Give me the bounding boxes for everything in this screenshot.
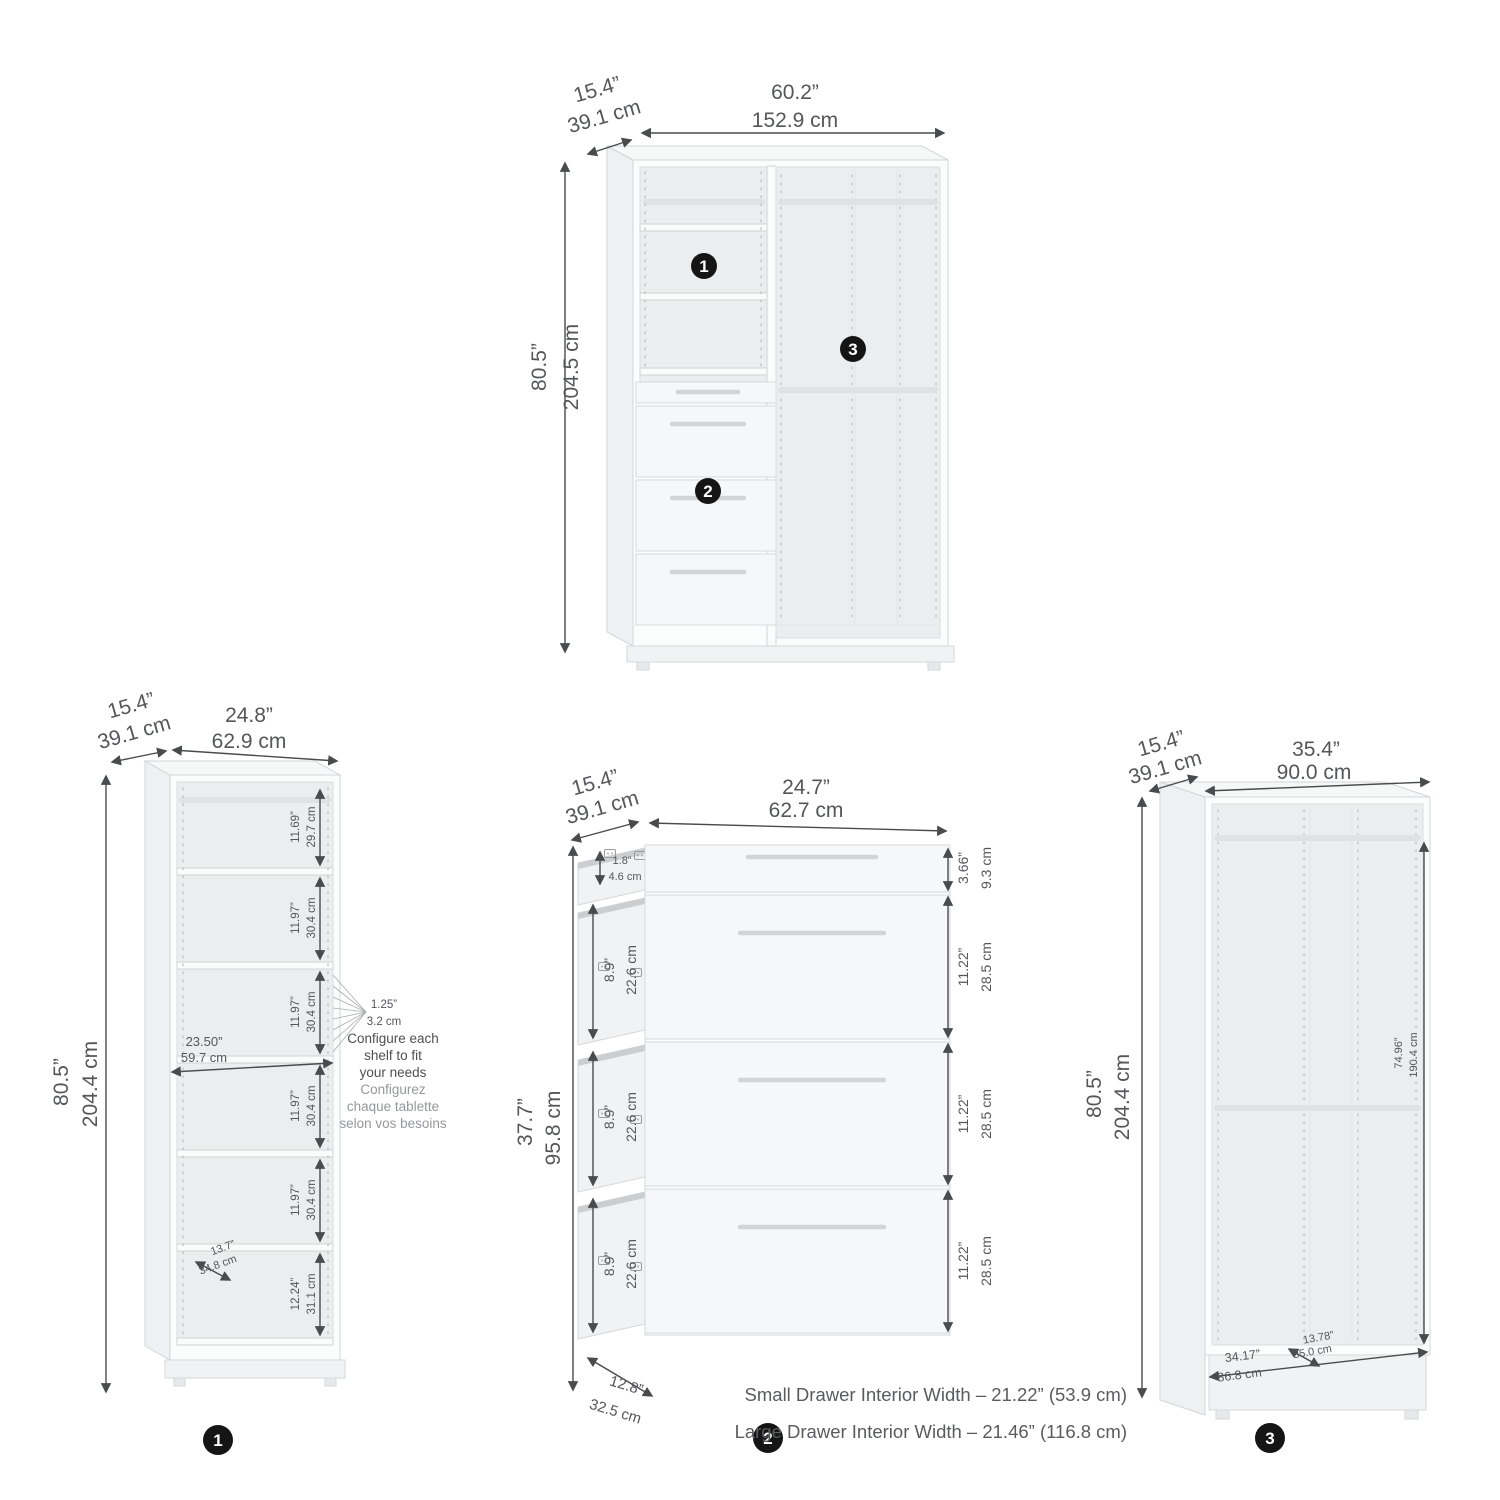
pin-spacing-in: 1.25” [371, 999, 397, 1011]
section-6-cm: 31.1 cm [306, 1274, 318, 1315]
top-height-in: 80.5” [528, 343, 551, 391]
shelf-interior-width-in: 23.50” [186, 1034, 223, 1049]
callout-2-badge: 2 [695, 478, 721, 504]
top-unit-drawing: 1 2 3 [607, 146, 954, 670]
drawer-width-cm: 62.7 cm [769, 799, 844, 822]
drawer-height-in: 37.7” [514, 1098, 537, 1146]
section-2-in: 11.97” [290, 902, 302, 934]
callout-2-number: 2 [703, 482, 712, 501]
callout-3-number: 3 [848, 340, 857, 359]
callout-1-badge-bottom: 1 [203, 1425, 233, 1455]
callout-3-number: 3 [1265, 1429, 1274, 1448]
shelf-interior-width-cm: 59.7 cm [181, 1050, 227, 1065]
drawer-fronts [645, 845, 950, 1333]
callout-3-badge: 3 [840, 336, 866, 362]
section-4-in: 11.97” [290, 1090, 302, 1122]
shelf-width-cm: 62.9 cm [212, 730, 287, 753]
wardrobe-width-cm: 90.0 cm [1277, 761, 1352, 784]
section-1-in: 11.69” [290, 811, 302, 843]
section-5-in: 11.97” [290, 1184, 302, 1216]
front-large-2-cm: 28.5 cm [978, 1089, 994, 1139]
large-drawer-1-int-cm: 22.6 cm [623, 945, 639, 995]
large-drawer-3-int-in: 8.9” [601, 1252, 617, 1276]
drawer-bottom-depth-cm: 32.5 cm [587, 1396, 643, 1428]
top-width-cm: 152.9 cm [752, 109, 838, 132]
note-fr-line1: Configurez [360, 1082, 426, 1097]
callout-1-badge: 1 [691, 253, 717, 279]
callout-1-number: 1 [699, 257, 708, 276]
wardrobe-height-cm: 204.4 cm [1111, 1054, 1134, 1140]
top-height-cm: 204.5 cm [560, 324, 583, 410]
wardrobe-width-in: 35.4” [1292, 738, 1340, 761]
large-drawer-3-int-cm: 22.6 cm [623, 1239, 639, 1289]
note-fr-line2: chaque tablette [347, 1099, 439, 1114]
footnotes: Small Drawer Interior Width – 21.22” (53… [735, 1384, 1127, 1442]
top-width-in: 60.2” [771, 81, 819, 104]
drawer-width-in: 24.7” [782, 776, 830, 799]
dimension-diagram-page: 1 2 3 15.4” 39.1 cm 60.2” 152.9 cm 80.5”… [0, 0, 1500, 1500]
section-3-in: 11.97” [290, 996, 302, 1028]
large-drawer-1-int-in: 8.9” [601, 958, 617, 982]
shelf-width-in: 24.8” [225, 704, 273, 727]
drawer-height-cm: 95.8 cm [542, 1091, 565, 1166]
section-4-cm: 30.4 cm [306, 1086, 318, 1127]
wardrobe-int-height-in: 74.96” [1393, 1037, 1405, 1069]
section-3-cm: 30.4 cm [306, 992, 318, 1033]
note-en-line2: shelf to fit [364, 1048, 422, 1063]
configure-note: Configure each shelf to fit your needs C… [339, 1031, 447, 1131]
front-large-2-in: 11.22” [955, 1094, 971, 1133]
footnote-small-drawer: Small Drawer Interior Width – 21.22” (53… [745, 1384, 1127, 1405]
front-large-1-in: 11.22” [955, 947, 971, 986]
pin-spacing-cm: 3.2 cm [367, 1016, 402, 1028]
wardrobe-int-height-cm: 190.4 cm [1408, 1032, 1420, 1077]
shelf-height-in: 80.5” [50, 1058, 73, 1106]
note-en-line3: your needs [360, 1065, 427, 1080]
section-5-cm: 30.4 cm [306, 1180, 318, 1221]
section-6-in: 12.24” [290, 1278, 302, 1311]
shelf-depth-cm: 39.1 cm [95, 711, 173, 754]
top-unit-plinth [627, 646, 954, 662]
footnote-large-drawer: Large Drawer Interior Width – 21.46” (11… [735, 1421, 1127, 1442]
small-drawer-int-cm: 4.6 cm [608, 871, 641, 883]
section-1-cm: 29.7 cm [306, 807, 318, 848]
front-large-3-cm: 28.5 cm [978, 1236, 994, 1286]
large-drawer-2-int-cm: 22.6 cm [623, 1092, 639, 1142]
large-drawer-2-int-in: 8.9” [601, 1105, 617, 1129]
wardrobe-unit-drawing [1160, 782, 1430, 1419]
drawer-bottom-depth-in: 12.8” [607, 1373, 645, 1399]
diagram-canvas: 1 2 3 15.4” 39.1 cm 60.2” 152.9 cm 80.5”… [0, 0, 1500, 1500]
front-large-3-in: 11.22” [955, 1241, 971, 1280]
note-en-line1: Configure each [347, 1031, 439, 1046]
callout-1-number: 1 [213, 1431, 222, 1450]
small-drawer-int-in: 1.8” [613, 855, 632, 867]
section-2-cm: 30.4 cm [306, 898, 318, 939]
front-large-1-cm: 28.5 cm [978, 942, 994, 992]
callout-3-badge-bottom: 3 [1255, 1423, 1285, 1453]
front-small-cm: 9.3 cm [978, 847, 994, 889]
wardrobe-height-in: 80.5” [1083, 1070, 1106, 1118]
shelf-height-cm: 204.4 cm [79, 1041, 102, 1127]
front-small-in: 3.66” [955, 852, 971, 884]
note-fr-line3: selon vos besoins [339, 1116, 447, 1131]
